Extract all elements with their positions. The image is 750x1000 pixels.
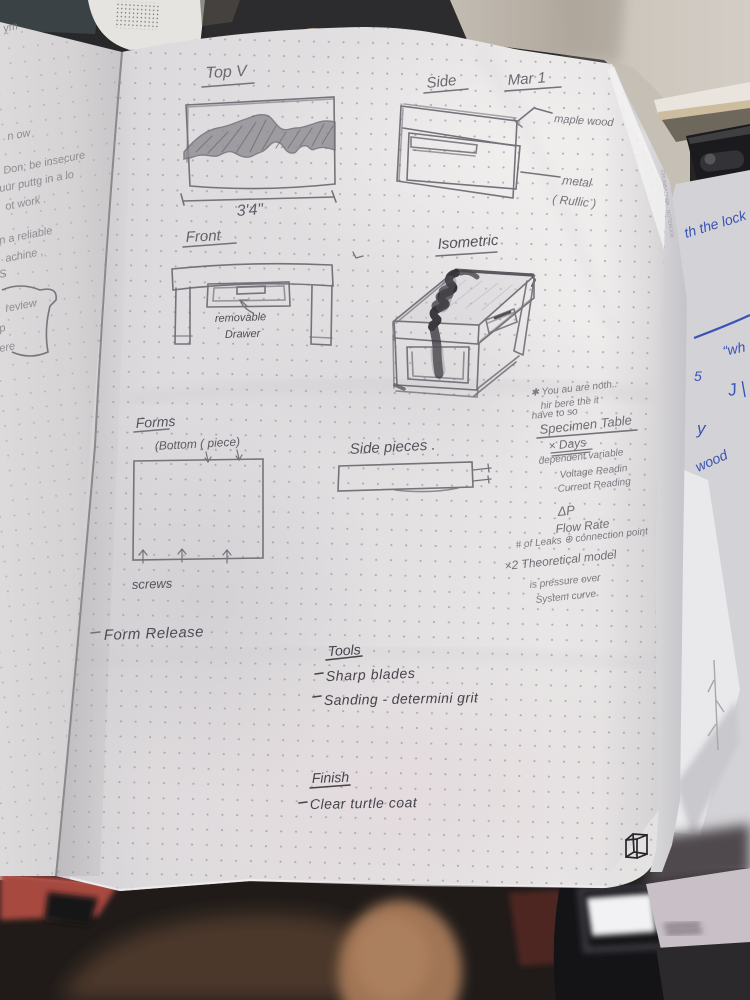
svg-text:Mar 1: Mar 1 xyxy=(507,69,546,89)
svg-text:Sharp blades: Sharp blades xyxy=(326,665,416,684)
svg-text:Drawer: Drawer xyxy=(225,328,262,341)
svg-text:Form Release: Form Release xyxy=(104,624,205,644)
svg-text:Clear turtle coat: Clear turtle coat xyxy=(310,794,418,812)
svg-text:5: 5 xyxy=(694,368,702,384)
svg-text:Side: Side xyxy=(426,72,458,92)
svg-text:J |: J | xyxy=(725,378,747,400)
svg-text:Forms: Forms xyxy=(135,413,175,431)
svg-text:removable: removable xyxy=(215,311,267,325)
svg-text:screws: screws xyxy=(132,576,173,592)
svg-text:Top V: Top V xyxy=(205,63,248,82)
svg-text:Finish: Finish xyxy=(312,769,350,786)
svg-text:y: y xyxy=(696,419,707,438)
svg-text:Sanding - determini grit: Sanding - determini grit xyxy=(324,689,479,708)
svg-text:ΔP: ΔP xyxy=(556,502,576,519)
svg-text:Front: Front xyxy=(185,227,222,246)
svg-text:3'4": 3'4" xyxy=(236,201,265,220)
